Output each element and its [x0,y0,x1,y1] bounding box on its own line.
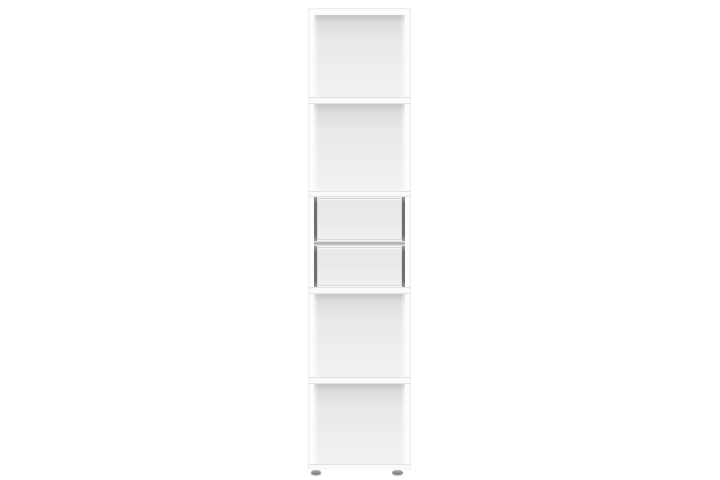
foot-right [392,470,403,475]
shelf-3 [309,287,410,294]
bookcase [308,8,411,476]
shelf-1 [309,97,410,104]
product-image-canvas [0,0,720,480]
drawer-1-front [317,198,402,240]
shelf-4 [309,377,410,384]
drawer-section [314,197,405,287]
open-compartment-2 [314,104,405,191]
drawer-2 [314,246,405,287]
drawer-2-front [317,247,402,286]
open-compartment-4 [314,384,405,464]
drawer-1-gap-right [402,197,405,241]
foot-left [311,470,321,475]
drawer-1 [314,197,405,241]
drawer-2-gap-right [402,246,405,287]
open-compartment-3 [314,294,405,377]
open-compartment-1 [314,15,405,97]
